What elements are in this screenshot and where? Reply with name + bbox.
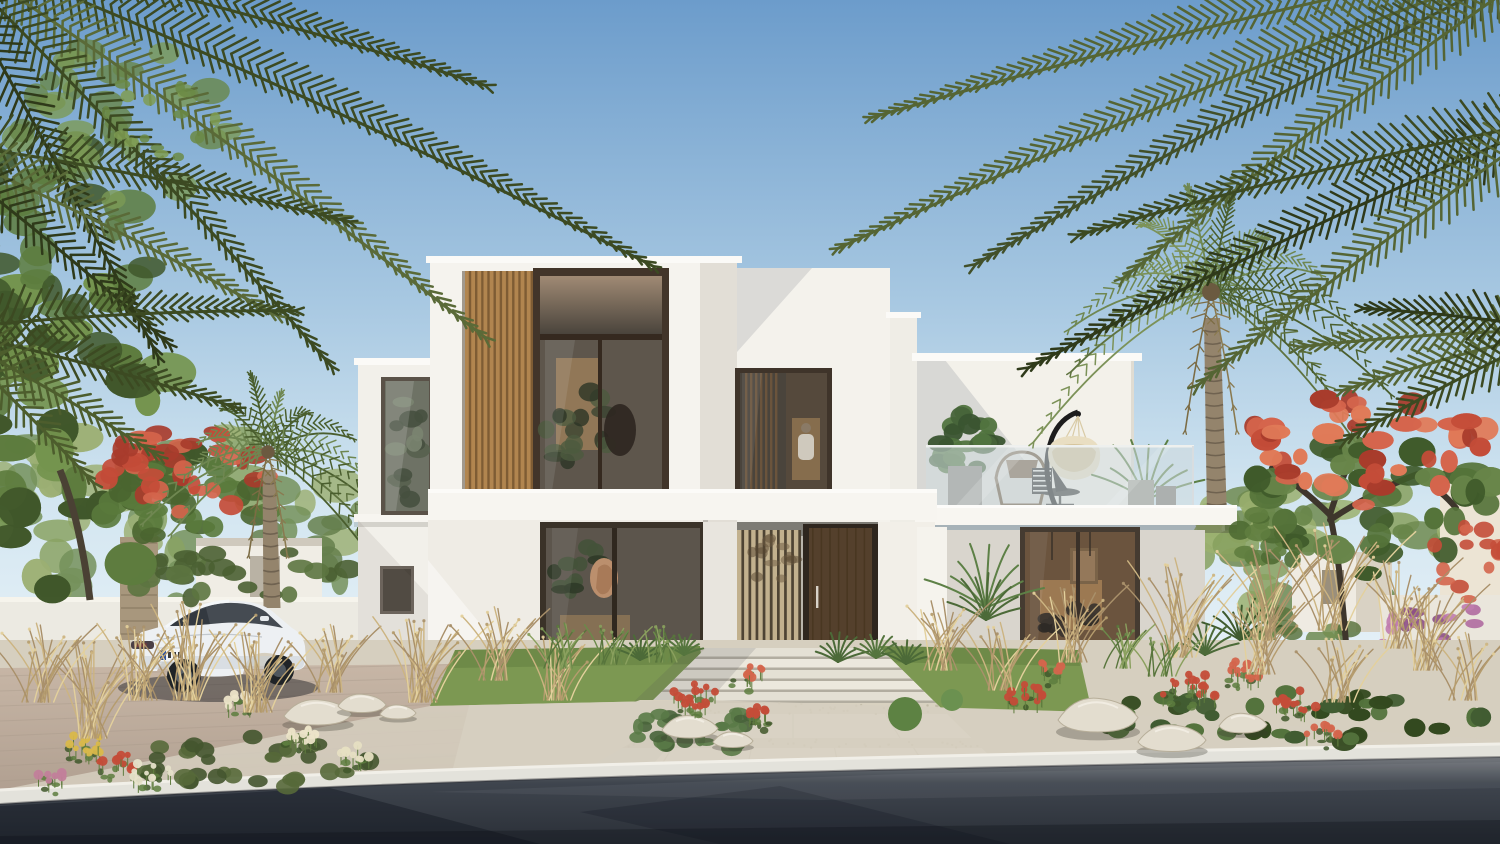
villa-rendering — [0, 0, 1500, 844]
scene-canvas — [0, 0, 1500, 844]
